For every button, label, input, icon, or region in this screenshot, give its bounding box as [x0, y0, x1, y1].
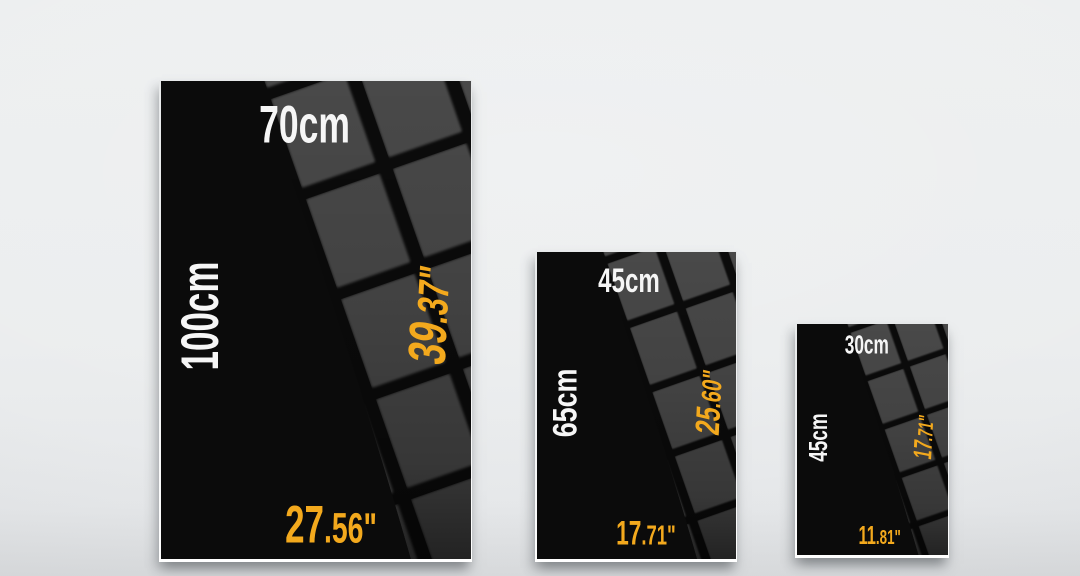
- svg-text:70cm: 70cm: [259, 94, 350, 154]
- svg-text:27.56": 27.56": [285, 494, 377, 554]
- svg-text:65cm: 65cm: [547, 369, 585, 438]
- svg-text:45cm: 45cm: [804, 413, 832, 461]
- svg-text:17.71": 17.71": [616, 515, 676, 553]
- svg-text:11.81": 11.81": [858, 521, 900, 550]
- svg-text:100cm: 100cm: [169, 262, 229, 371]
- svg-text:30cm: 30cm: [845, 330, 889, 359]
- svg-text:45cm: 45cm: [598, 262, 660, 300]
